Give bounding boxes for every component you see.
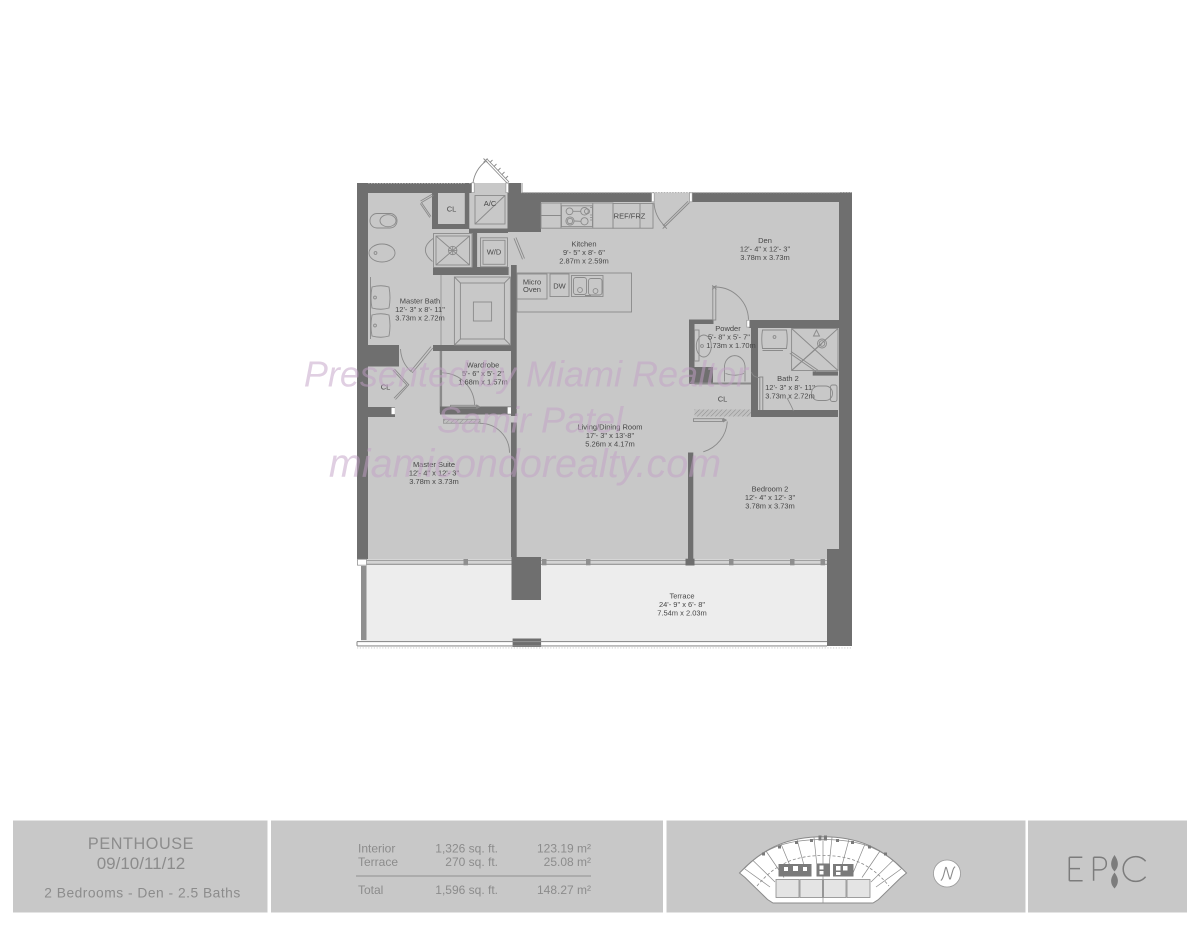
svg-text:DW: DW bbox=[553, 282, 566, 291]
svg-text:25.08 m²: 25.08 m² bbox=[544, 855, 591, 869]
svg-text:Total: Total bbox=[358, 883, 383, 897]
svg-text:2 Bedrooms - Den - 2.5 Baths: 2 Bedrooms - Den - 2.5 Baths bbox=[44, 886, 241, 901]
svg-text:CL: CL bbox=[447, 205, 457, 214]
svg-text:1,596 sq. ft.: 1,596 sq. ft. bbox=[435, 883, 498, 897]
svg-text:7.54m x 2.03m: 7.54m x 2.03m bbox=[657, 609, 707, 618]
svg-text:Terrace: Terrace bbox=[358, 855, 398, 869]
svg-text:2.87m x 2.59m: 2.87m x 2.59m bbox=[559, 257, 609, 266]
svg-text:Presented by Miami Realtor: Presented by Miami Realtor bbox=[304, 354, 750, 395]
svg-text:W/D: W/D bbox=[487, 248, 502, 257]
svg-text:Oven: Oven bbox=[523, 285, 541, 294]
svg-text:Samir Patel: Samir Patel bbox=[437, 400, 624, 441]
svg-text:Interior: Interior bbox=[358, 842, 395, 856]
svg-text:REF/FRZ: REF/FRZ bbox=[614, 212, 646, 221]
svg-text:123.19 m²: 123.19 m² bbox=[537, 842, 591, 856]
svg-text:148.27 m²: 148.27 m² bbox=[537, 883, 591, 897]
svg-text:A/C: A/C bbox=[484, 199, 497, 208]
svg-text:09/10/11/12: 09/10/11/12 bbox=[97, 854, 186, 873]
svg-text:1,326 sq. ft.: 1,326 sq. ft. bbox=[435, 842, 498, 856]
svg-text:3.73m x 2.72m: 3.73m x 2.72m bbox=[765, 391, 815, 400]
svg-text:1.73m x 1.70m: 1.73m x 1.70m bbox=[706, 341, 756, 350]
svg-text:miamicondorealty.com: miamicondorealty.com bbox=[329, 442, 721, 486]
svg-text:3.78m x 3.73m: 3.78m x 3.73m bbox=[740, 253, 790, 262]
svg-text:PENTHOUSE: PENTHOUSE bbox=[88, 835, 194, 853]
svg-text:3.73m x 2.72m: 3.73m x 2.72m bbox=[395, 314, 445, 323]
svg-text:CL: CL bbox=[718, 395, 728, 404]
svg-text:270 sq. ft.: 270 sq. ft. bbox=[445, 855, 498, 869]
svg-text:3.78m x 3.73m: 3.78m x 3.73m bbox=[745, 502, 795, 511]
